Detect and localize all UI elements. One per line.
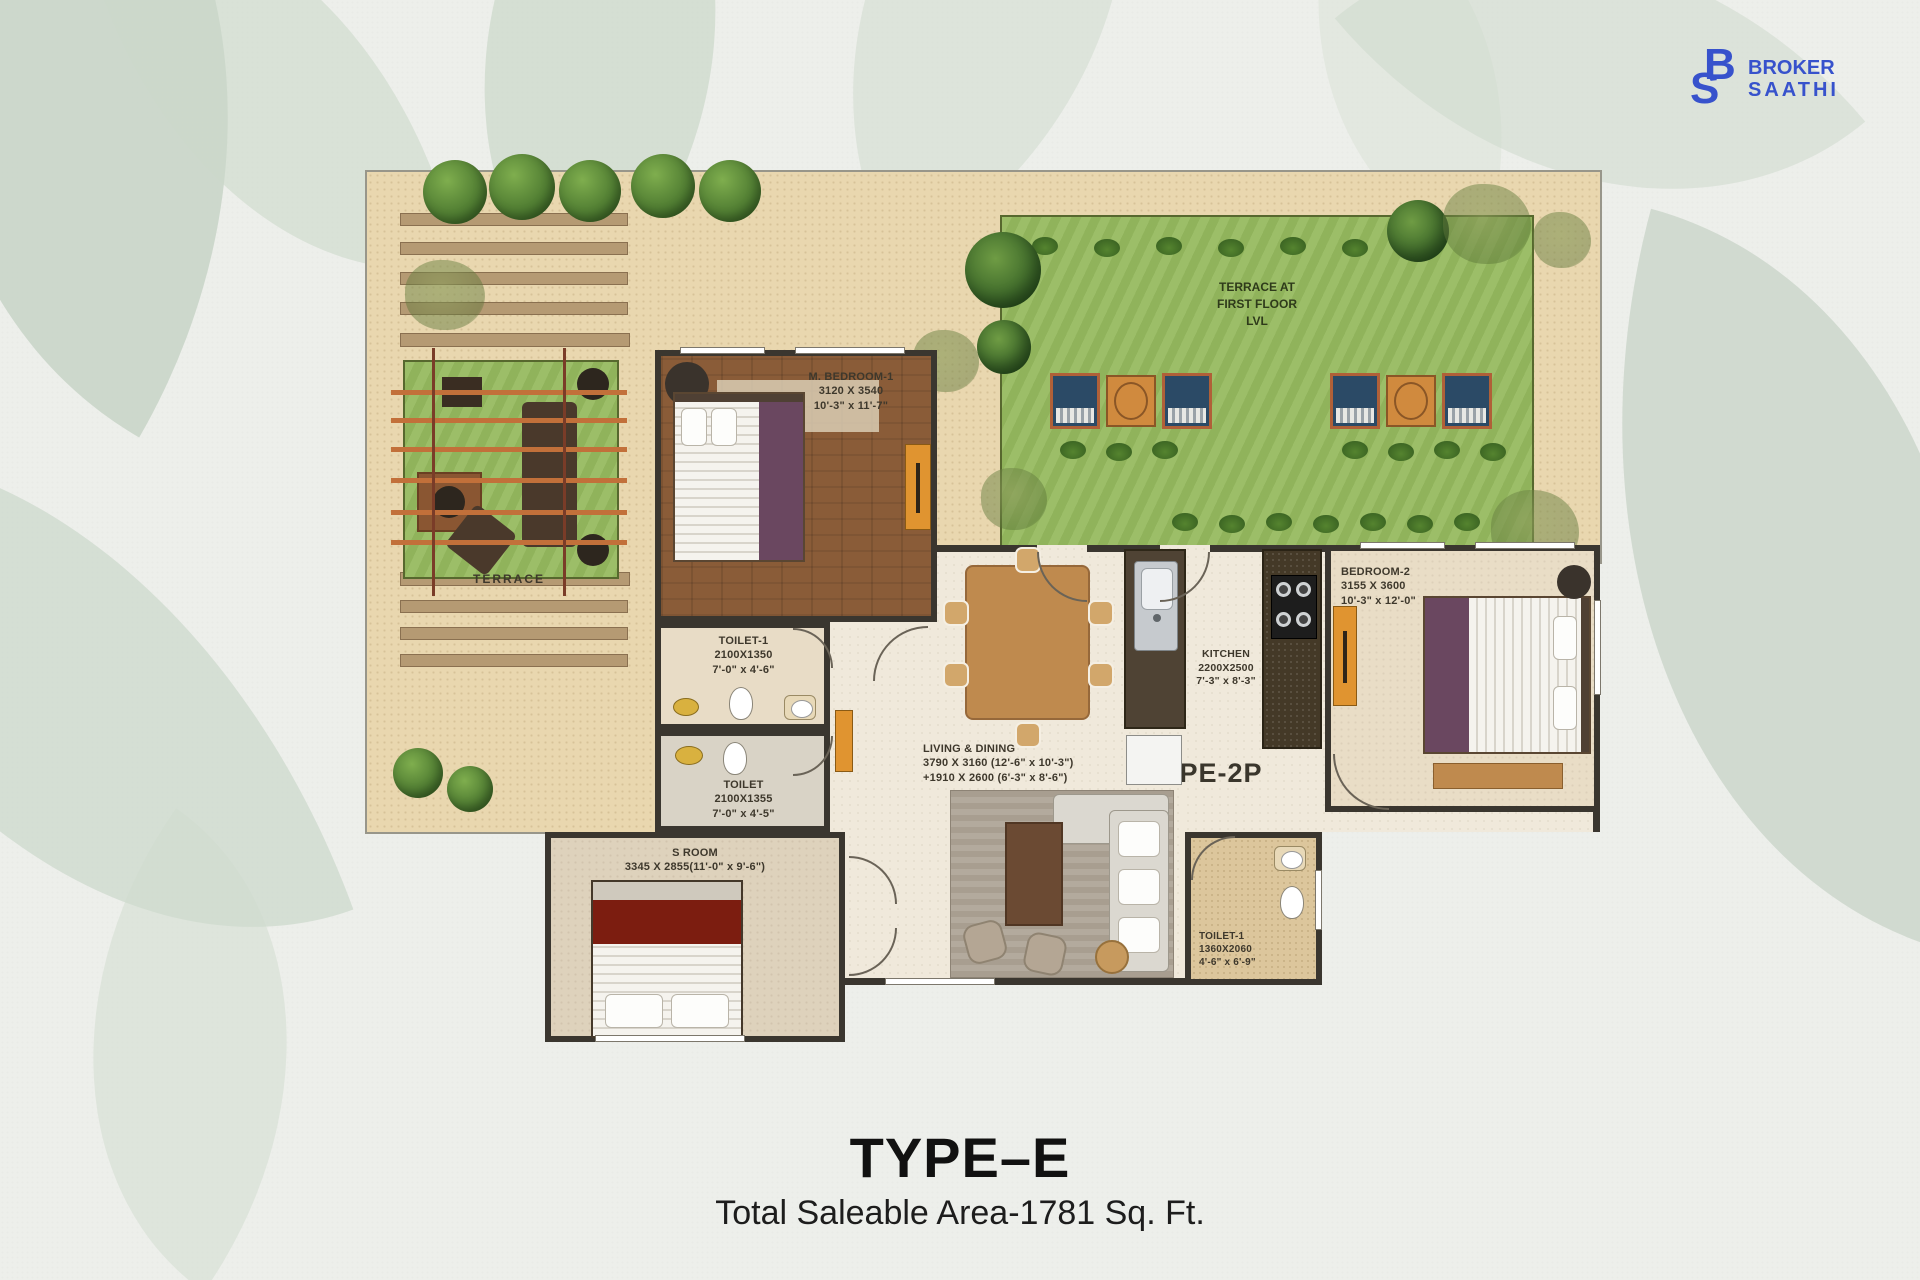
bed bbox=[591, 880, 743, 1038]
bed-blanket bbox=[593, 900, 741, 944]
lawn-terrace: TERRACE AT FIRST FLOOR LVL bbox=[1000, 215, 1534, 554]
pergola-post bbox=[563, 348, 566, 596]
broker-saathi-logo: B S BROKER SAATHI bbox=[1690, 46, 1880, 112]
sofa-cushion bbox=[1118, 869, 1160, 905]
dining-chair bbox=[1088, 600, 1114, 626]
room-name: LIVING & DINING bbox=[923, 742, 1158, 756]
room-dim-mm: 2100X1350 bbox=[681, 648, 806, 662]
garden-seat bbox=[1442, 373, 1492, 429]
deck-plank bbox=[400, 600, 628, 613]
garden-seat bbox=[1330, 373, 1380, 429]
kitchen-stove-counter bbox=[1262, 549, 1322, 749]
window bbox=[1315, 870, 1322, 930]
room-dim-mm: 2100X1355 bbox=[681, 792, 806, 806]
shrub bbox=[1106, 443, 1132, 461]
pillow bbox=[711, 408, 737, 446]
pillow bbox=[1553, 686, 1577, 730]
bed bbox=[1423, 596, 1591, 754]
logo-wordmark: BROKER SAATHI bbox=[1748, 57, 1839, 101]
bed-headboard bbox=[1581, 598, 1589, 752]
cabinet bbox=[835, 710, 853, 772]
page-subtitle: Total Saleable Area-1781 Sq. Ft. bbox=[0, 1194, 1920, 1233]
floor-plan: TERRACE TERRACE AT FIRST FLOOR LVL bbox=[365, 170, 1605, 1042]
wall bbox=[830, 978, 1185, 985]
shrub bbox=[1280, 237, 1306, 255]
wc bbox=[723, 742, 747, 775]
bush bbox=[393, 748, 443, 798]
tree bbox=[1533, 212, 1591, 268]
pergola-beam bbox=[391, 390, 627, 395]
wc bbox=[1280, 886, 1304, 919]
logo-word-saathi: SAATHI bbox=[1748, 79, 1839, 101]
lawn-label-line3: LVL bbox=[1152, 313, 1362, 330]
bed-blanket bbox=[1425, 598, 1469, 752]
shrub bbox=[1360, 513, 1386, 531]
stove bbox=[1271, 575, 1317, 639]
outdoor-sofa bbox=[522, 402, 577, 547]
room-name: M. BEDROOM-1 bbox=[771, 370, 931, 384]
logo-monogram-icon: B S bbox=[1690, 47, 1748, 111]
toilet-mid-label: TOILET 2100X1355 7'-0" x 4'-5" bbox=[681, 778, 806, 821]
room-name: KITCHEN bbox=[1189, 648, 1263, 662]
window bbox=[595, 1035, 745, 1042]
shrub bbox=[1434, 441, 1460, 459]
basin-oval bbox=[675, 746, 703, 765]
shrub bbox=[1094, 239, 1120, 257]
toilet1-top-label: TOILET-1 2100X1350 7'-0" x 4'-6" bbox=[681, 634, 806, 677]
toilet1-br-label: TOILET-1 1360X2060 4'-6" x 6'-9" bbox=[1199, 930, 1291, 969]
bush bbox=[489, 154, 555, 220]
sink-faucet-icon bbox=[1153, 614, 1161, 622]
seat-mat bbox=[1056, 408, 1094, 423]
deck-plank bbox=[400, 627, 628, 640]
bed bbox=[673, 392, 805, 562]
burner-icon bbox=[1276, 582, 1291, 597]
lawn-label-line1: TERRACE AT bbox=[1152, 279, 1362, 296]
seat-mat bbox=[1448, 408, 1486, 423]
bush bbox=[559, 160, 621, 222]
room-dim-mm: 1360X2060 bbox=[1199, 943, 1291, 956]
room-dim-ft: 7'-3" x 8'-3" bbox=[1189, 675, 1263, 689]
footer: TYPE–E Total Saleable Area-1781 Sq. Ft. bbox=[0, 1125, 1920, 1233]
shower-tray bbox=[784, 695, 816, 720]
tree bbox=[977, 320, 1031, 374]
living-dining-label: LIVING & DINING 3790 X 3160 (12'-6" x 10… bbox=[923, 742, 1158, 785]
pergola-beam bbox=[391, 540, 627, 545]
shrub bbox=[1060, 441, 1086, 459]
basin bbox=[1274, 846, 1306, 871]
basin-bowl bbox=[1281, 851, 1303, 869]
wardrobe bbox=[905, 444, 931, 530]
bedside-table-round bbox=[1557, 565, 1591, 599]
room-dim-mm: 3155 X 3600 bbox=[1341, 579, 1491, 593]
room-dim-mm: 3120 X 3540 bbox=[771, 384, 931, 398]
basin-oval bbox=[673, 698, 699, 716]
pergola-beam bbox=[391, 447, 627, 452]
shrub bbox=[1342, 441, 1368, 459]
garden-table-top bbox=[1114, 382, 1148, 420]
pergola-beam bbox=[391, 478, 627, 483]
side-table-round bbox=[1095, 940, 1129, 974]
room-dim2: +1910 X 2600 (6'-3" x 8'-6") bbox=[923, 771, 1158, 785]
tree bbox=[405, 260, 485, 330]
garden-seat bbox=[1050, 373, 1100, 429]
shrub bbox=[1218, 239, 1244, 257]
room-dim-ft: 7'-0" x 4'-6" bbox=[681, 663, 806, 677]
room-dim-mm: 2200X2500 bbox=[1189, 662, 1263, 676]
tree bbox=[1443, 184, 1531, 264]
shrub bbox=[1313, 515, 1339, 533]
bush bbox=[447, 766, 493, 812]
shrub bbox=[1388, 443, 1414, 461]
pergola-post bbox=[432, 348, 435, 596]
shrub bbox=[1454, 513, 1480, 531]
window bbox=[1475, 542, 1575, 549]
room-dim: 3345 X 2855(11'-0" x 9'-6") bbox=[551, 860, 839, 874]
burner-icon bbox=[1276, 612, 1291, 627]
dining-chair bbox=[943, 600, 969, 626]
wc bbox=[729, 687, 753, 720]
wardrobe-handle bbox=[1343, 631, 1347, 683]
room-name: S ROOM bbox=[551, 846, 839, 860]
room-name: TOILET-1 bbox=[1199, 930, 1291, 943]
window bbox=[795, 347, 905, 354]
garden-table bbox=[1386, 375, 1436, 427]
deck-plank bbox=[400, 333, 630, 347]
bed-headboard bbox=[593, 882, 741, 900]
window bbox=[680, 347, 765, 354]
wardrobe bbox=[1333, 606, 1357, 706]
page-title: TYPE–E bbox=[0, 1125, 1920, 1190]
brochure-page: B S BROKER SAATHI bbox=[0, 0, 1920, 1280]
shrub bbox=[1219, 515, 1245, 533]
lawn-terrace-label: TERRACE AT FIRST FLOOR LVL bbox=[1152, 279, 1362, 329]
bed-blanket bbox=[759, 402, 803, 560]
shrub bbox=[1156, 237, 1182, 255]
room-dim-ft: 10'-3" x 11'-7" bbox=[771, 399, 931, 413]
tree bbox=[981, 468, 1047, 530]
pillow bbox=[605, 994, 663, 1028]
shrub bbox=[1152, 441, 1178, 459]
bush bbox=[631, 154, 695, 218]
logo-word-broker: BROKER bbox=[1748, 57, 1839, 79]
garden-table-top bbox=[1394, 382, 1428, 420]
side-table-round bbox=[577, 368, 609, 400]
burner-icon bbox=[1296, 612, 1311, 627]
sofa-cushion bbox=[1118, 821, 1160, 857]
deck-plank bbox=[400, 654, 628, 667]
room-dim-ft: 4'-6" x 6'-9" bbox=[1199, 956, 1291, 969]
burner-icon bbox=[1296, 582, 1311, 597]
room-m-bedroom1: M. BEDROOM-1 3120 X 3540 10'-3" x 11'-7" bbox=[655, 350, 937, 622]
wall bbox=[1593, 812, 1600, 832]
kitchen-label: KITCHEN 2200X2500 7'-3" x 8'-3" bbox=[1189, 648, 1263, 689]
dining-chair bbox=[1088, 662, 1114, 688]
coffee-table bbox=[1005, 822, 1063, 926]
pillow bbox=[1553, 616, 1577, 660]
garden-table bbox=[1106, 375, 1156, 427]
shrub bbox=[1407, 515, 1433, 533]
bush bbox=[423, 160, 487, 224]
pillow bbox=[671, 994, 729, 1028]
shrub bbox=[1172, 513, 1198, 531]
garden-seat bbox=[1162, 373, 1212, 429]
shrub bbox=[1342, 239, 1368, 257]
window bbox=[1360, 542, 1445, 549]
shrub bbox=[1480, 443, 1506, 461]
wardrobe-handle bbox=[916, 463, 920, 513]
bush bbox=[699, 160, 761, 222]
tree bbox=[965, 232, 1041, 308]
deck-plank bbox=[400, 242, 628, 255]
dining-chair bbox=[943, 662, 969, 688]
pillow bbox=[681, 408, 707, 446]
s-room-label: S ROOM 3345 X 2855(11'-0" x 9'-6") bbox=[551, 846, 839, 875]
basin-bowl bbox=[791, 700, 813, 718]
terrace-label: TERRACE bbox=[403, 572, 615, 586]
terrace-label-text: TERRACE bbox=[473, 572, 545, 586]
room-dim1: 3790 X 3160 (12'-6" x 10'-3") bbox=[923, 756, 1158, 770]
room-dim-ft: 7'-0" x 4'-5" bbox=[681, 807, 806, 821]
monogram-letter-s: S bbox=[1690, 67, 1719, 111]
pergola-beam bbox=[391, 510, 627, 515]
fridge bbox=[1126, 735, 1182, 785]
seat-mat bbox=[1336, 408, 1374, 423]
pergola-beam bbox=[391, 418, 627, 423]
seat-mat bbox=[1168, 408, 1206, 423]
m-bedroom1-label: M. BEDROOM-1 3120 X 3540 10'-3" x 11'-7" bbox=[771, 370, 931, 413]
tree bbox=[1387, 200, 1449, 262]
lawn-label-line2: FIRST FLOOR bbox=[1152, 296, 1362, 313]
room-name: TOILET bbox=[681, 778, 806, 792]
room-s-room: S ROOM 3345 X 2855(11'-0" x 9'-6") bbox=[545, 832, 845, 1042]
room-name: BEDROOM-2 bbox=[1341, 565, 1491, 579]
shrub bbox=[1266, 513, 1292, 531]
window bbox=[885, 978, 995, 985]
window bbox=[1594, 600, 1601, 695]
room-name: TOILET-1 bbox=[681, 634, 806, 648]
dresser bbox=[1433, 763, 1563, 789]
side-table-round bbox=[577, 534, 609, 566]
